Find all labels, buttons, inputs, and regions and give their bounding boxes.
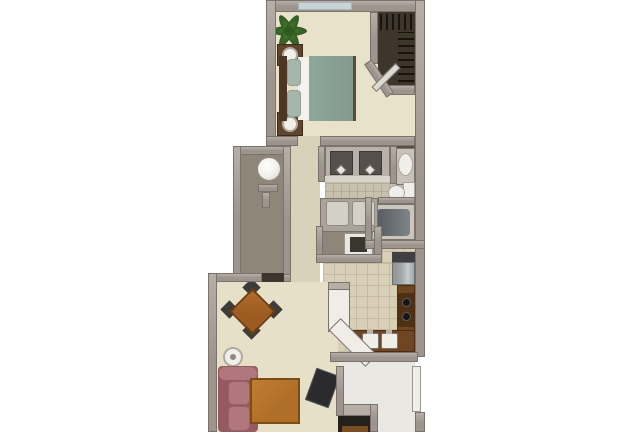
wall-kitchen-bottom [330,352,418,362]
front-door [412,366,421,412]
water-heater [256,156,282,182]
wall-living-left [208,273,217,432]
closet-hangers-right [398,32,414,82]
coffee-table [250,378,300,424]
wall-utility-right [283,146,291,282]
pedestal-sink-bowl [398,153,413,176]
wall-bedroom-left [266,0,276,146]
sofa-cushion-2 [228,406,250,431]
wall-utility-stub-h [258,184,278,192]
vanity-front-panel [325,176,390,182]
sofa-cushion-1 [228,381,250,405]
wall-closet-left [370,12,378,64]
living-top-wall-opening [262,273,284,282]
bath-cabinet-door-left [326,201,349,226]
kitchen-faucet-left [367,330,373,334]
wall-tub-left [365,197,372,244]
wall-toilet-tub-divider [378,197,415,204]
closet-hangers-top [380,14,413,30]
wall-utility-left [233,146,241,282]
wall-entry-closet-right [370,404,378,432]
bed-comforter [309,56,356,121]
bedroom-window [298,2,352,10]
wall-bedroom-bottom-right [320,136,415,146]
wall-right-lower [415,412,425,432]
bed-pillow-top [287,59,301,86]
plant-center [284,26,294,36]
breakfast-bar-top-edge [328,282,350,290]
entry-closet-shelf [342,426,368,432]
floor-lamp-center [230,354,236,360]
wall-bath-left [318,146,325,182]
stove-burner-1 [402,298,411,307]
wall-entry-stub [336,366,344,416]
wall-right-upper [415,0,425,357]
floorplan-image [0,0,640,432]
refrigerator-top [392,252,415,262]
bed-headboard [279,56,287,121]
wall-washer-bottom [316,254,382,263]
wall-bedroom-bottom-left [266,136,298,146]
bed [279,56,356,121]
kitchen-sink-right [381,333,398,349]
kitchen-faucet-right [386,330,392,334]
stove-burner-2 [402,312,411,321]
wall-sink-divider [390,146,397,184]
wall-washer-right [374,226,382,256]
wall-utility-stub-v [262,192,270,208]
refrigerator [392,262,415,285]
bed-pillow-bottom [287,90,301,117]
